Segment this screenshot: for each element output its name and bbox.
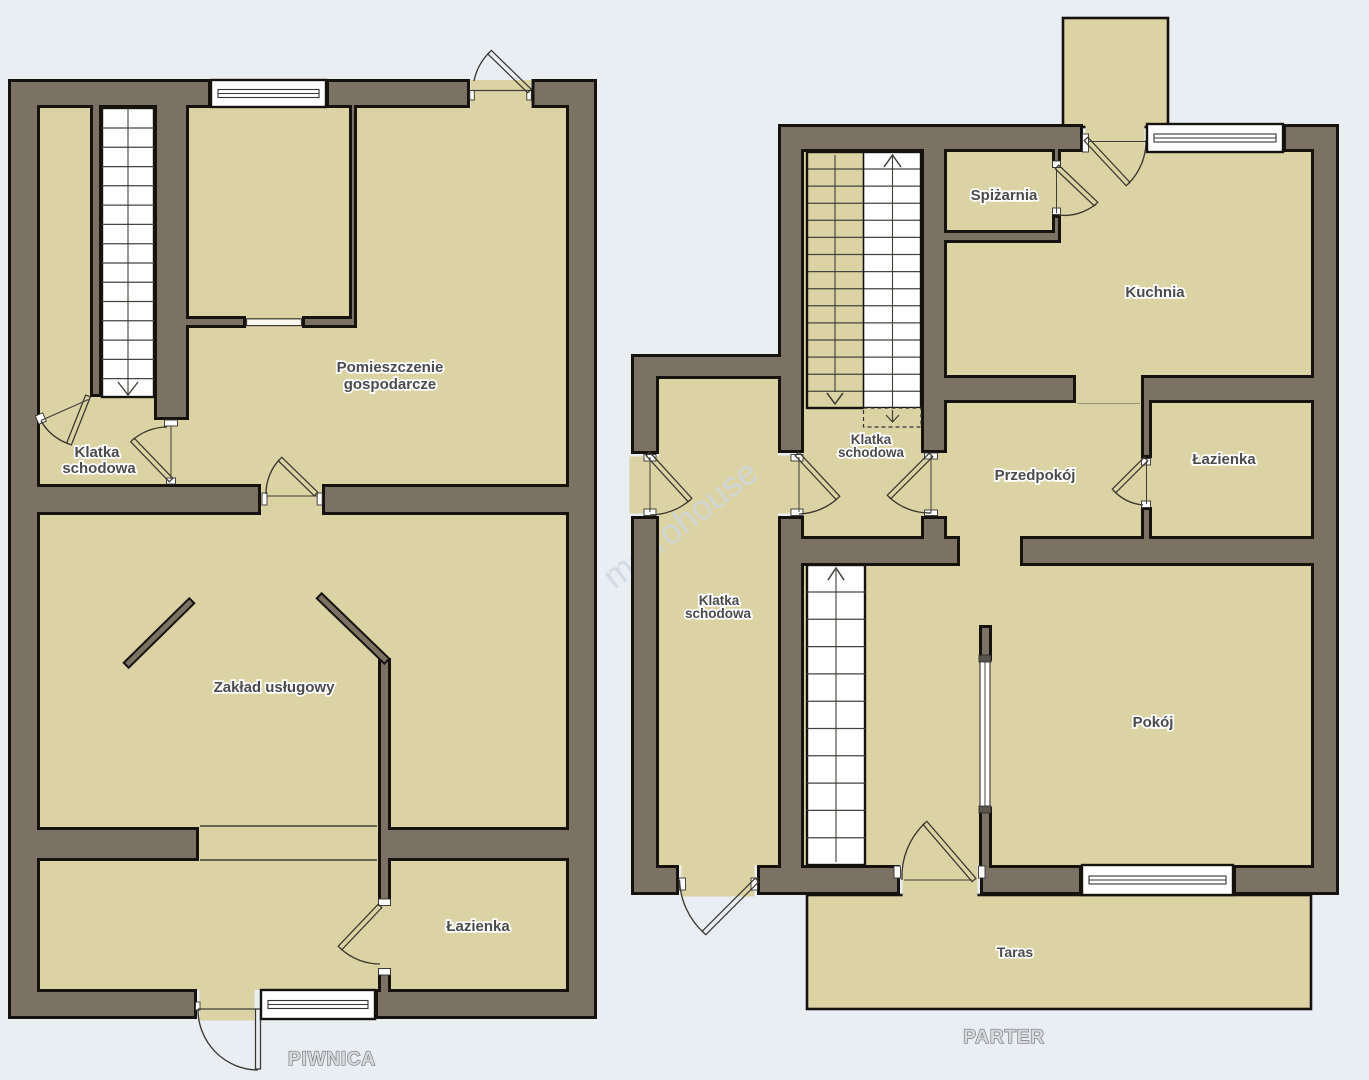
svg-text:Łazienka: Łazienka	[1192, 451, 1256, 468]
svg-text:Łazienka: Łazienka	[446, 918, 510, 935]
svg-text:schodowa: schodowa	[62, 460, 136, 477]
svg-text:Przedpokój: Przedpokój	[995, 467, 1076, 484]
svg-text:Taras: Taras	[997, 944, 1034, 960]
svg-text:schodowa: schodowa	[685, 606, 752, 621]
svg-text:Pokój: Pokój	[1133, 714, 1174, 731]
svg-text:PIWNICA: PIWNICA	[288, 1049, 376, 1070]
svg-text:gospodarcze: gospodarcze	[344, 376, 437, 393]
svg-text:PARTER: PARTER	[963, 1027, 1045, 1048]
svg-text:Kuchnia: Kuchnia	[1125, 284, 1185, 301]
svg-text:schodowa: schodowa	[838, 445, 905, 460]
svg-text:Zakład usługowy: Zakład usługowy	[214, 679, 336, 696]
svg-text:Klatka: Klatka	[74, 444, 120, 461]
svg-text:Pomieszczenie: Pomieszczenie	[337, 359, 444, 376]
svg-text:Spiżarnia: Spiżarnia	[971, 187, 1038, 204]
